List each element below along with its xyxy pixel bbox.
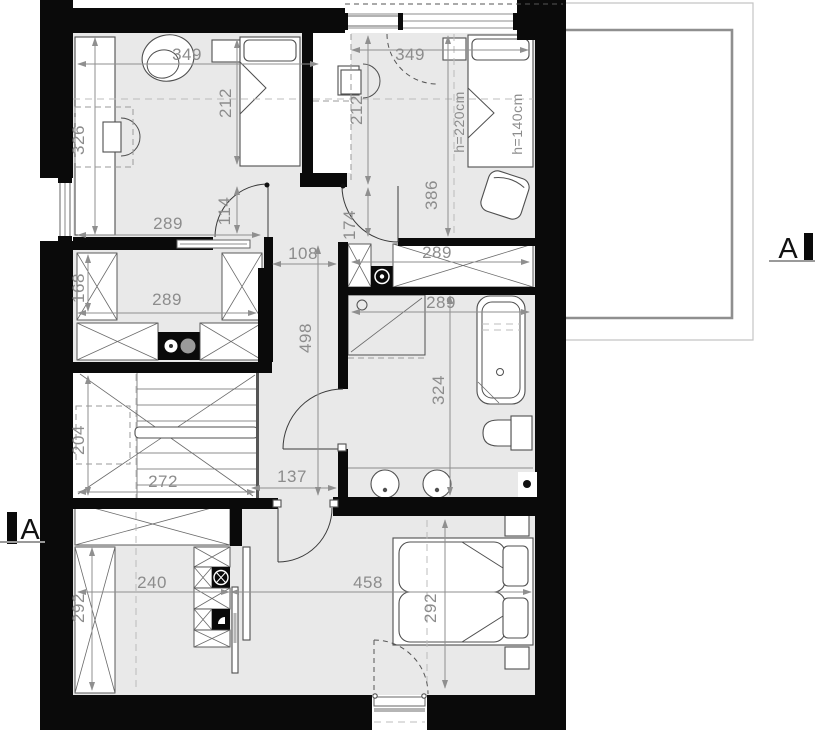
pillow xyxy=(503,598,528,638)
dimension-label: 114 xyxy=(215,197,234,226)
terrace-outline xyxy=(560,3,753,340)
wardrobe-cabinet xyxy=(77,323,158,360)
dimension-label: 272 xyxy=(148,472,178,491)
nightstand xyxy=(212,40,240,62)
dimension-label: 349 xyxy=(172,45,202,64)
floor-plan-page: 349326212289114349212174386h=220cmh=140c… xyxy=(0,0,815,735)
section-label: A xyxy=(778,233,798,265)
pocket-door xyxy=(177,240,250,248)
dimension-label: 289 xyxy=(153,214,183,233)
laundry-counter xyxy=(158,332,200,360)
floor-plan-canvas: 349326212289114349212174386h=220cmh=140c… xyxy=(0,0,815,735)
dimension-label: 326 xyxy=(69,125,88,155)
section-marker-right: A xyxy=(769,233,815,265)
dimension-label: 289 xyxy=(426,293,456,312)
wall-between-bedrooms xyxy=(302,33,313,187)
dimension-label: 137 xyxy=(277,467,307,486)
tv-shelf xyxy=(243,547,250,640)
toilet xyxy=(483,416,532,450)
pillow xyxy=(244,40,296,61)
chair-seat xyxy=(103,122,121,152)
dimension-label: h=140cm xyxy=(509,93,525,154)
dimension-label: 212 xyxy=(347,95,366,125)
dimension-label: 108 xyxy=(288,244,318,263)
dimension-label: 289 xyxy=(422,243,452,262)
dimension-label: 292 xyxy=(69,593,88,623)
section-marker-left: A xyxy=(0,512,45,546)
nightstand xyxy=(505,647,529,669)
stair-railing xyxy=(256,373,259,498)
dimension-label: 324 xyxy=(429,375,448,405)
section-label: A xyxy=(20,514,40,546)
wardrobe-cabinet xyxy=(222,253,262,320)
dimension-label: 240 xyxy=(137,573,167,592)
wall-niche xyxy=(518,472,537,497)
chair-seat xyxy=(341,70,361,94)
dimension-label: 292 xyxy=(421,593,440,623)
dimension-label: 349 xyxy=(395,45,425,64)
wardrobe-cabinet xyxy=(200,323,262,360)
dimension-label: 212 xyxy=(216,88,235,118)
window-bottom xyxy=(372,694,427,730)
closet-box xyxy=(393,244,533,287)
dimension-label: 168 xyxy=(69,273,88,303)
shelf-column xyxy=(194,547,230,647)
closet-box xyxy=(348,244,371,287)
window-left xyxy=(40,177,73,242)
dimension-label: 204 xyxy=(69,425,88,455)
wardrobe-cabinet xyxy=(75,503,230,545)
dimension-label: h=220cm xyxy=(451,91,467,152)
dimension-label: 174 xyxy=(340,210,359,240)
washing-machine xyxy=(371,266,393,287)
dimension-label: 498 xyxy=(296,323,315,353)
stair-handrail xyxy=(135,427,258,438)
nightstand xyxy=(505,514,529,536)
pillow xyxy=(503,546,528,586)
dimension-label: 386 xyxy=(422,180,441,210)
low-headroom-strip xyxy=(313,33,351,173)
dimension-label: 458 xyxy=(353,573,383,592)
dimension-label: 289 xyxy=(152,290,182,309)
